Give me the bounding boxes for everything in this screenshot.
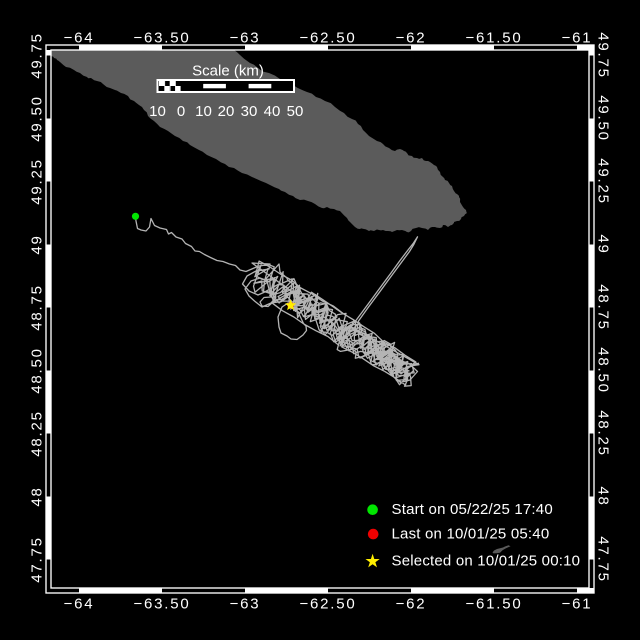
svg-text:48: 48 [595,486,612,506]
svg-text:48.50: 48.50 [29,347,46,394]
svg-text:−63.50: −63.50 [133,596,190,613]
svg-text:48.50: 48.50 [595,347,612,394]
svg-text:50: 50 [287,103,304,120]
svg-text:49.25: 49.25 [595,158,612,205]
svg-text:−62.50: −62.50 [299,30,356,47]
svg-text:49: 49 [595,234,612,254]
svg-text:49.75: 49.75 [595,32,612,79]
svg-text:20: 20 [218,103,235,120]
svg-text:10: 10 [149,103,166,120]
svg-text:Last on 10/01/25 05:40: Last on 10/01/25 05:40 [392,526,550,543]
svg-text:48.25: 48.25 [595,410,612,457]
svg-text:Selected on 10/01/25 00:10: Selected on 10/01/25 00:10 [392,553,581,570]
svg-text:49.25: 49.25 [29,158,46,205]
svg-text:−64: −64 [64,596,95,613]
svg-text:−63: −63 [230,596,261,613]
svg-text:−63: −63 [230,30,261,47]
svg-text:−62: −62 [396,596,427,613]
svg-text:49.75: 49.75 [29,32,46,79]
svg-text:49: 49 [29,234,46,254]
svg-text:−61.50: −61.50 [465,596,522,613]
svg-text:−63.50: −63.50 [133,30,190,47]
svg-text:47.75: 47.75 [595,536,612,583]
svg-text:0: 0 [177,103,185,120]
svg-text:−62: −62 [396,30,427,47]
svg-text:48.25: 48.25 [29,410,46,457]
svg-text:−61: −61 [562,30,593,47]
svg-text:47.75: 47.75 [29,536,46,583]
svg-text:48: 48 [29,486,46,506]
svg-text:Scale (km): Scale (km) [192,63,264,80]
svg-text:49.50: 49.50 [595,95,612,142]
svg-text:10: 10 [195,103,212,120]
svg-text:40: 40 [264,103,281,120]
svg-text:Start on 05/22/25 17:40: Start on 05/22/25 17:40 [392,501,553,518]
svg-text:−61.50: −61.50 [465,30,522,47]
svg-text:−64: −64 [64,30,95,47]
svg-text:−62.50: −62.50 [299,596,356,613]
svg-text:49.50: 49.50 [29,95,46,142]
svg-text:48.75: 48.75 [29,284,46,331]
svg-text:−61: −61 [562,596,593,613]
svg-text:30: 30 [241,103,258,120]
svg-text:48.75: 48.75 [595,284,612,331]
